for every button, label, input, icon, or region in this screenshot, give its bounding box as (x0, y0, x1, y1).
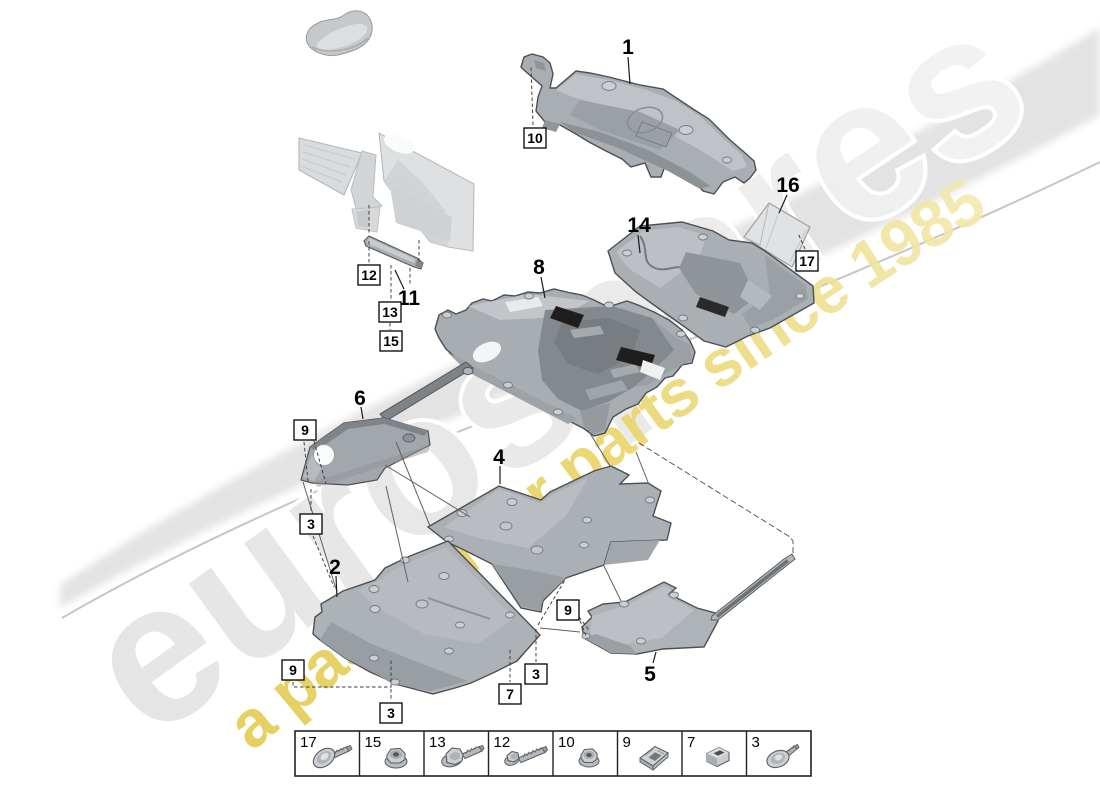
svg-text:3: 3 (752, 734, 760, 751)
svg-text:10: 10 (558, 734, 575, 751)
svg-text:8: 8 (533, 256, 545, 279)
svg-text:9: 9 (289, 662, 297, 678)
svg-text:9: 9 (623, 734, 631, 751)
svg-text:3: 3 (387, 705, 395, 721)
svg-text:7: 7 (506, 686, 514, 702)
svg-text:6: 6 (354, 387, 366, 410)
svg-text:14: 14 (627, 214, 651, 237)
svg-text:15: 15 (383, 333, 399, 349)
svg-text:13: 13 (382, 304, 398, 320)
svg-text:17: 17 (799, 253, 815, 269)
svg-text:5: 5 (644, 663, 656, 686)
svg-text:3: 3 (532, 666, 540, 682)
svg-text:9: 9 (301, 422, 309, 438)
svg-text:10: 10 (527, 130, 543, 146)
svg-text:13: 13 (429, 734, 446, 751)
svg-text:16: 16 (776, 174, 799, 197)
svg-text:1: 1 (622, 36, 634, 59)
svg-text:12: 12 (361, 267, 377, 283)
svg-text:17: 17 (300, 734, 317, 751)
svg-text:3: 3 (307, 516, 315, 532)
svg-text:12: 12 (494, 734, 511, 751)
svg-text:7: 7 (687, 734, 695, 751)
svg-text:9: 9 (564, 602, 572, 618)
svg-text:4: 4 (493, 446, 505, 469)
svg-text:15: 15 (365, 734, 382, 751)
svg-text:2: 2 (329, 556, 341, 579)
